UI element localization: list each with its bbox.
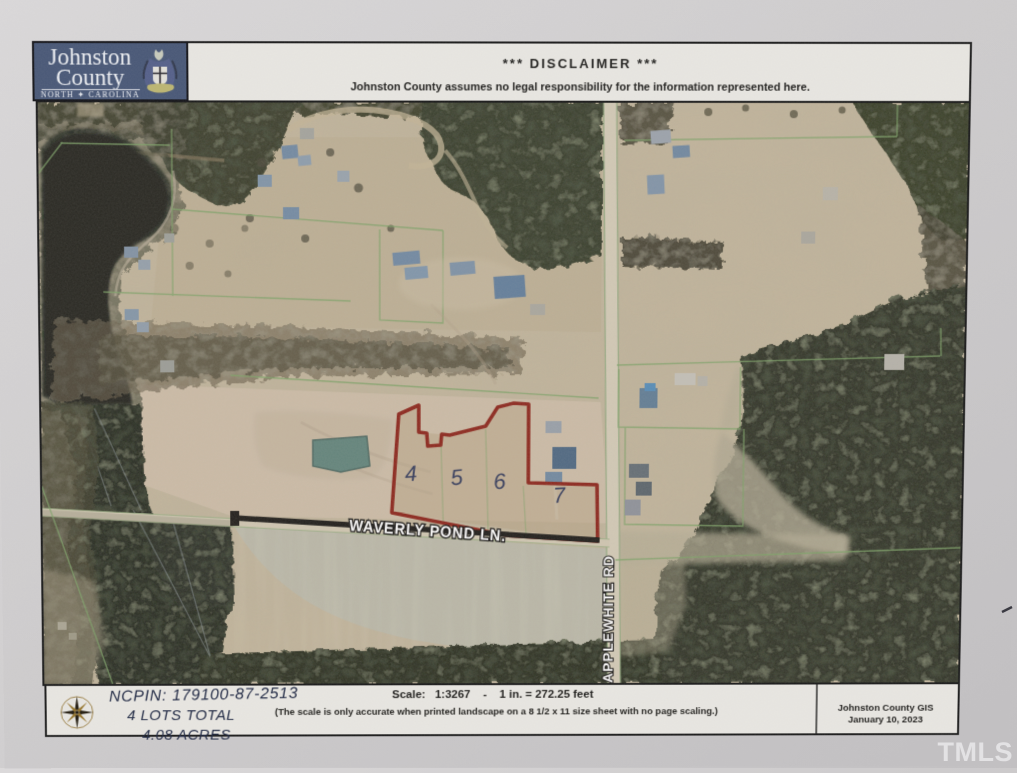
svg-text:County: County [56, 65, 125, 91]
svg-text:Johnston County assumes no leg: Johnston County assumes no legal respons… [351, 81, 811, 93]
svg-text:January 10, 2023: January 10, 2023 [848, 715, 924, 726]
svg-text:Scale: 1:3267 - 1 in.: Scale: 1:3267 - 1 in. = 272.25 feet [392, 688, 593, 701]
svg-text:(The scale is only accurate wh: (The scale is only accurate when printed… [275, 706, 718, 717]
svg-text:*** DISCLAIMER ***: *** DISCLAIMER *** [503, 56, 659, 71]
svg-text:NORTH ✦ CAROLINA: NORTH ✦ CAROLINA [41, 91, 140, 100]
svg-text:NCPIN: 179100-87-2513: NCPIN: 179100-87-2513 [109, 684, 299, 705]
svg-text:Johnston County GIS: Johnston County GIS [838, 703, 934, 714]
svg-text:4.08 ACRES: 4.08 ACRES [142, 727, 231, 743]
svg-text:4 LOTS TOTAL: 4 LOTS TOTAL [127, 707, 235, 724]
